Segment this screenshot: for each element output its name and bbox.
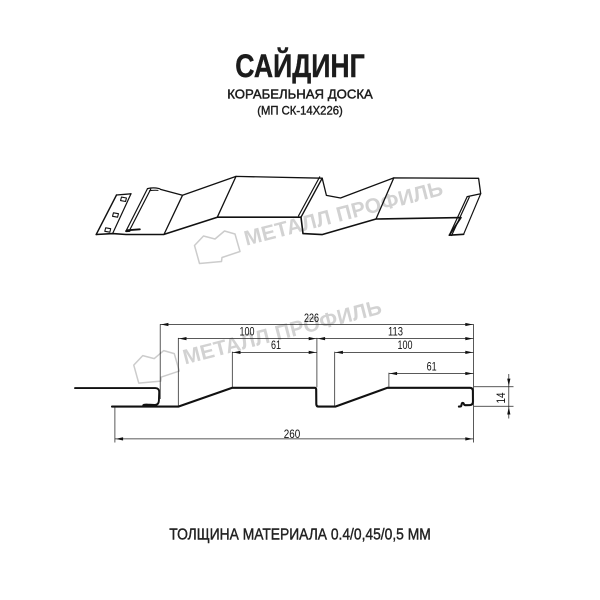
- svg-text:100: 100: [240, 326, 255, 338]
- svg-text:(МП СК-14Х226): (МП СК-14Х226): [257, 103, 343, 117]
- svg-text:61: 61: [427, 361, 437, 373]
- svg-text:100: 100: [398, 340, 413, 352]
- svg-text:САЙДИНГ: САЙДИНГ: [235, 48, 365, 84]
- svg-text:226: 226: [304, 313, 319, 325]
- svg-text:113: 113: [388, 326, 403, 338]
- svg-text:14: 14: [496, 392, 508, 404]
- svg-text:КОРАБЕЛЬНАЯ ДОСКА: КОРАБЕЛЬНАЯ ДОСКА: [227, 86, 373, 101]
- svg-text:ТОЛЩИНА МАТЕРИАЛА 0.4/0,45/0,5: ТОЛЩИНА МАТЕРИАЛА 0.4/0,45/0,5 ММ: [169, 527, 431, 544]
- svg-text:260: 260: [284, 429, 301, 441]
- svg-text:61: 61: [271, 340, 281, 352]
